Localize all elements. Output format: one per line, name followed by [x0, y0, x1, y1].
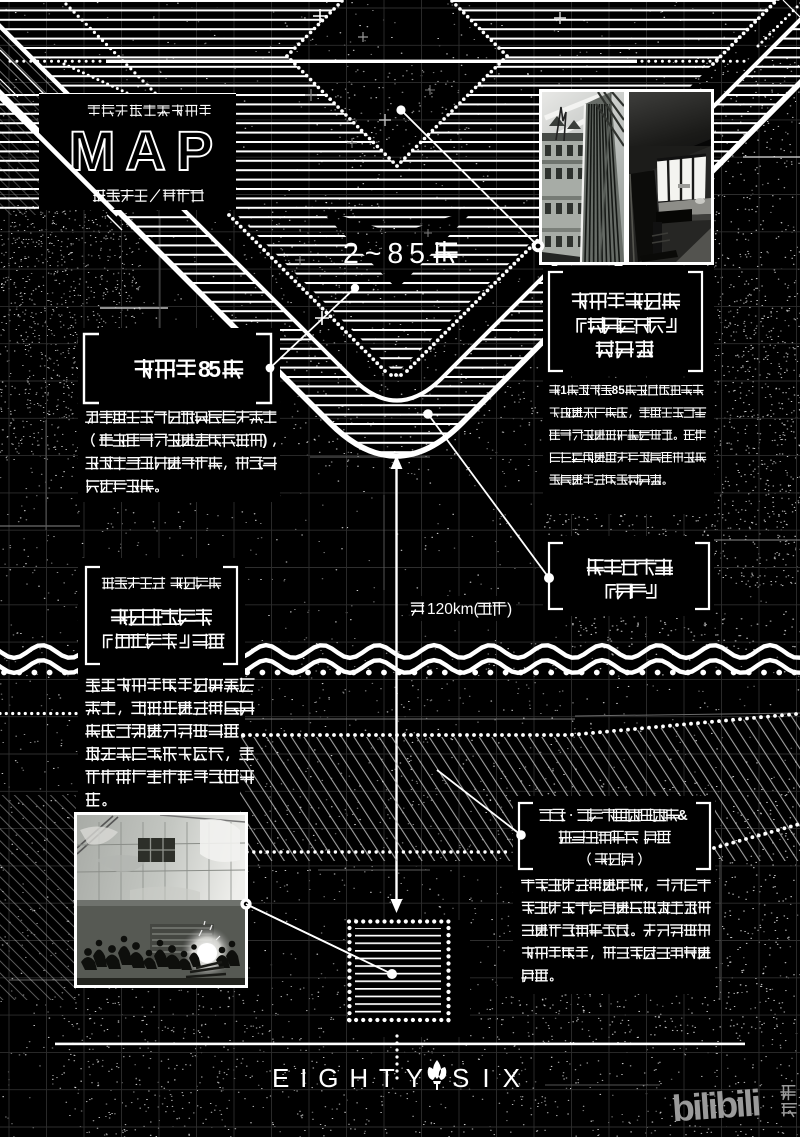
svg-text:120km(: 120km(: [427, 601, 480, 618]
svg-text:&: &: [677, 808, 688, 824]
svg-text:SIX: SIX: [452, 1063, 528, 1093]
svg-text:85: 85: [198, 356, 221, 382]
svg-text:1: 1: [560, 383, 567, 397]
svg-text:): ): [263, 433, 268, 449]
svg-text:): ): [507, 601, 512, 618]
svg-text:MAP: MAP: [69, 119, 223, 182]
svg-text:EIGHTY: EIGHTY: [272, 1063, 431, 1093]
svg-text:85: 85: [612, 383, 626, 397]
svg-text:bilibili: bilibili: [671, 1082, 761, 1129]
svg-text:2~85: 2~85: [343, 238, 427, 270]
